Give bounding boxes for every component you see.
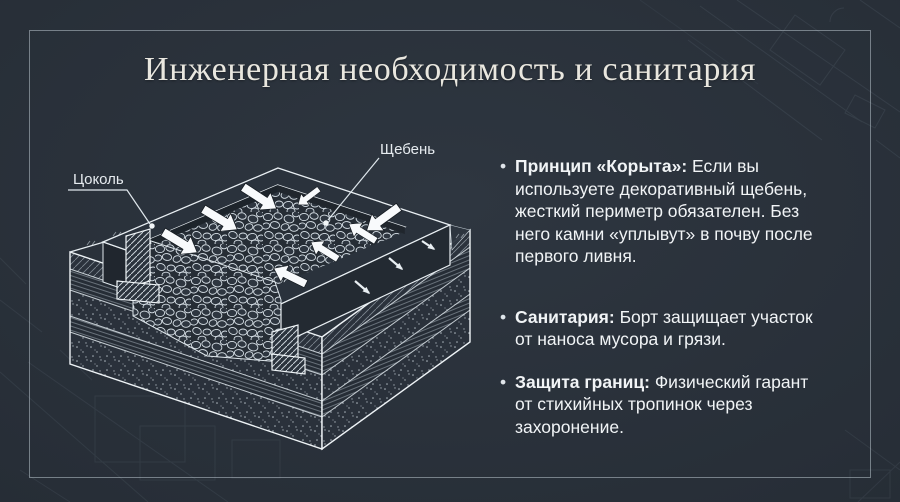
key-point-sanitation: • Санитария: Борт защищает участок от на… (500, 306, 846, 351)
plinth-label: Цоколь (73, 171, 124, 188)
bullet-marker: • (500, 371, 506, 394)
plinth-anchor-dot (149, 223, 154, 228)
key-point-line: первого ливня. (515, 245, 846, 268)
key-point-trough-principle: • Принцип «Корыта»: Если вы используете … (500, 155, 846, 268)
key-point-line: него камни «уплывут» в почву после (515, 223, 846, 246)
key-points-list: • Принцип «Корыта»: Если вы используете … (500, 155, 846, 438)
key-point-border-protection: • Защита границ: Физический гарант от ст… (500, 371, 846, 439)
key-point-text: Борт защищает участок (615, 307, 813, 327)
key-point-line: Защита границ: Физический гарант (515, 371, 846, 394)
slide-title: Инженерная необходимость и санитария (0, 51, 900, 89)
slide-canvas: Цоколь Щебень Инженерная необходимость и… (0, 0, 900, 502)
gravel-label: Щебень (380, 141, 435, 158)
key-point-term: Принцип «Корыта»: (515, 156, 687, 176)
plinth-leader-line (68, 190, 150, 224)
bullet-marker: • (500, 306, 506, 329)
key-point-line: жесткий периметр обязателен. Без (515, 200, 846, 223)
key-point-term: Санитария: (515, 307, 615, 327)
gravel-anchor-dot (323, 220, 328, 225)
key-point-text: Если вы (687, 156, 759, 176)
key-point-line: Принцип «Корыта»: Если вы (515, 155, 846, 178)
key-point-line: от стихийных тропинок через (515, 393, 846, 416)
key-point-line: используете декоративный щебень, (515, 178, 846, 201)
gravel-bed-diagram: Цоколь Щебень (47, 130, 492, 478)
key-point-line: захоронение. (515, 416, 846, 439)
plinth-callout: Цоколь (68, 171, 155, 229)
key-point-text: Физический гарант (650, 372, 808, 392)
key-point-line: от наноса мусора и грязи. (515, 328, 846, 351)
key-point-line: Санитария: Борт защищает участок (515, 306, 846, 329)
key-point-term: Защита границ: (515, 372, 650, 392)
bullet-marker: • (500, 155, 506, 178)
